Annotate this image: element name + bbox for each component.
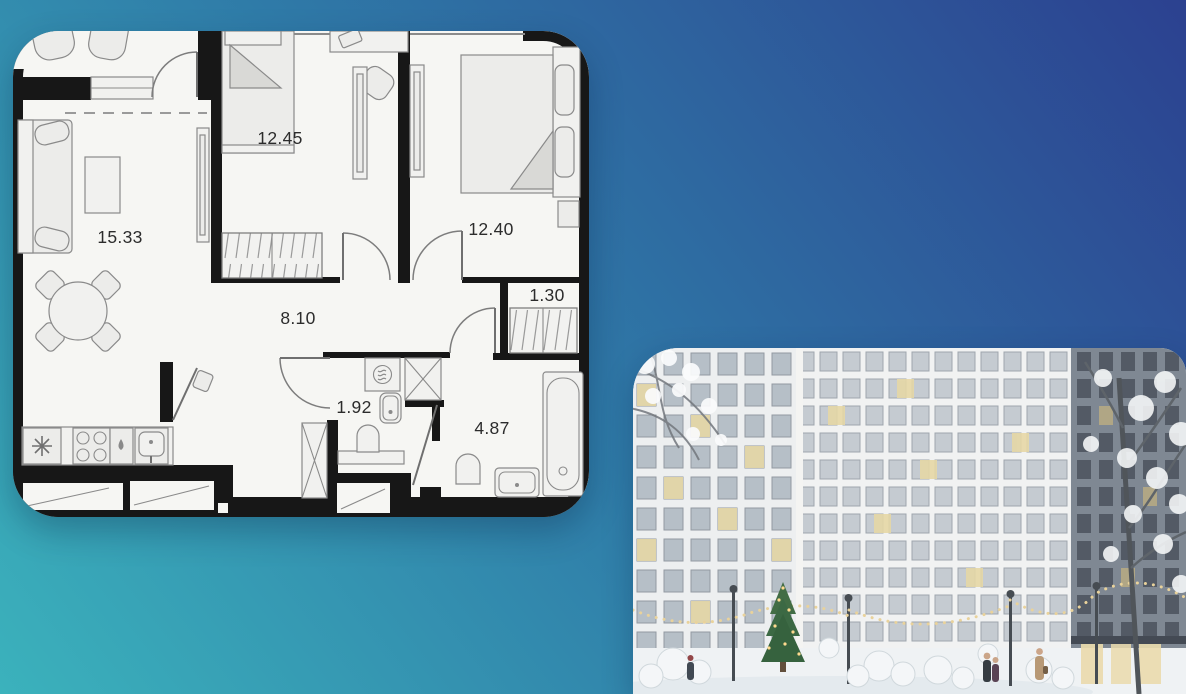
floor-plan-drawing: 15.33 12.45 12.40 8.10 1.30 1.92 4.87 [13,31,589,517]
page: { "page": { "background_gradient": ["#3b… [0,0,1186,694]
washing-machine [365,358,400,391]
tv-unit [197,128,209,242]
hallway-wardrobe [302,423,327,498]
bath-toilet [456,454,480,484]
vent-shaft [405,358,441,400]
coffee-table [85,157,120,213]
floor-plan-card: 15.33 12.45 12.40 8.10 1.30 1.92 4.87 [13,31,589,517]
area-label-wc: 1.92 [336,397,371,417]
bath-sink [495,468,539,497]
courtyard-photo [633,348,1186,694]
courtyard-render [633,348,1186,694]
nightstand [558,201,579,227]
area-label-wardrobe: 1.30 [529,285,564,305]
sofa [18,119,72,253]
tall-cabinet-bedroom2 [410,65,424,177]
area-label-living-room: 15.33 [97,227,142,247]
haze-overlay [633,348,1186,694]
wc-toilet [357,425,379,452]
area-label-bedroom-2: 12.40 [468,219,513,239]
kitchen-sink [135,428,168,464]
area-label-bedroom-1: 12.45 [257,128,302,148]
fridge-icon [32,436,52,456]
area-label-hallway: 8.10 [280,308,315,328]
wc-ledge [338,451,404,464]
tall-cabinet-bedroom1 [353,67,367,179]
double-bed [461,47,580,197]
area-label-bathroom: 4.87 [474,418,509,438]
kitchen-counter [22,427,173,465]
wc-sink [380,393,401,423]
bathtub [543,372,583,496]
stove [73,428,110,464]
